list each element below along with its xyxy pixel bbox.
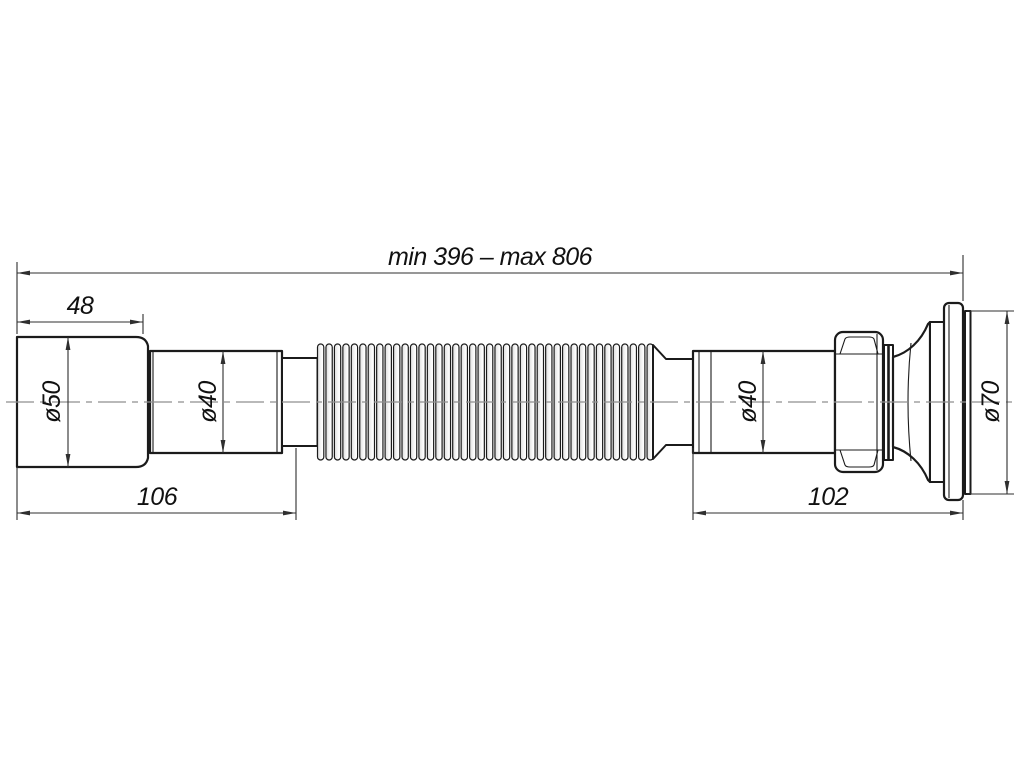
hose-rib <box>368 344 374 460</box>
overall-length-label: min 396 – max 806 <box>388 243 593 271</box>
inlet-length-label: 48 <box>67 292 94 320</box>
left-pipe-diameter-label: ø40 <box>194 381 222 423</box>
right-pipe-diameter-label: ø40 <box>734 381 762 423</box>
left-body-length-label: 106 <box>137 483 178 511</box>
flange-diameter-label: ø70 <box>977 381 1005 423</box>
inlet-diameter-label: ø50 <box>38 381 66 423</box>
flexible-pipe-technical-drawing: min 396 – max 806 48 106 102 ø50 ø40 ø40… <box>0 0 1024 768</box>
drawing-canvas: min 396 – max 806 48 106 102 ø50 ø40 ø40… <box>0 0 1024 768</box>
hose-rib <box>402 344 408 460</box>
inlet-cylinder <box>17 337 148 467</box>
right-body-length-label: 102 <box>808 483 849 511</box>
